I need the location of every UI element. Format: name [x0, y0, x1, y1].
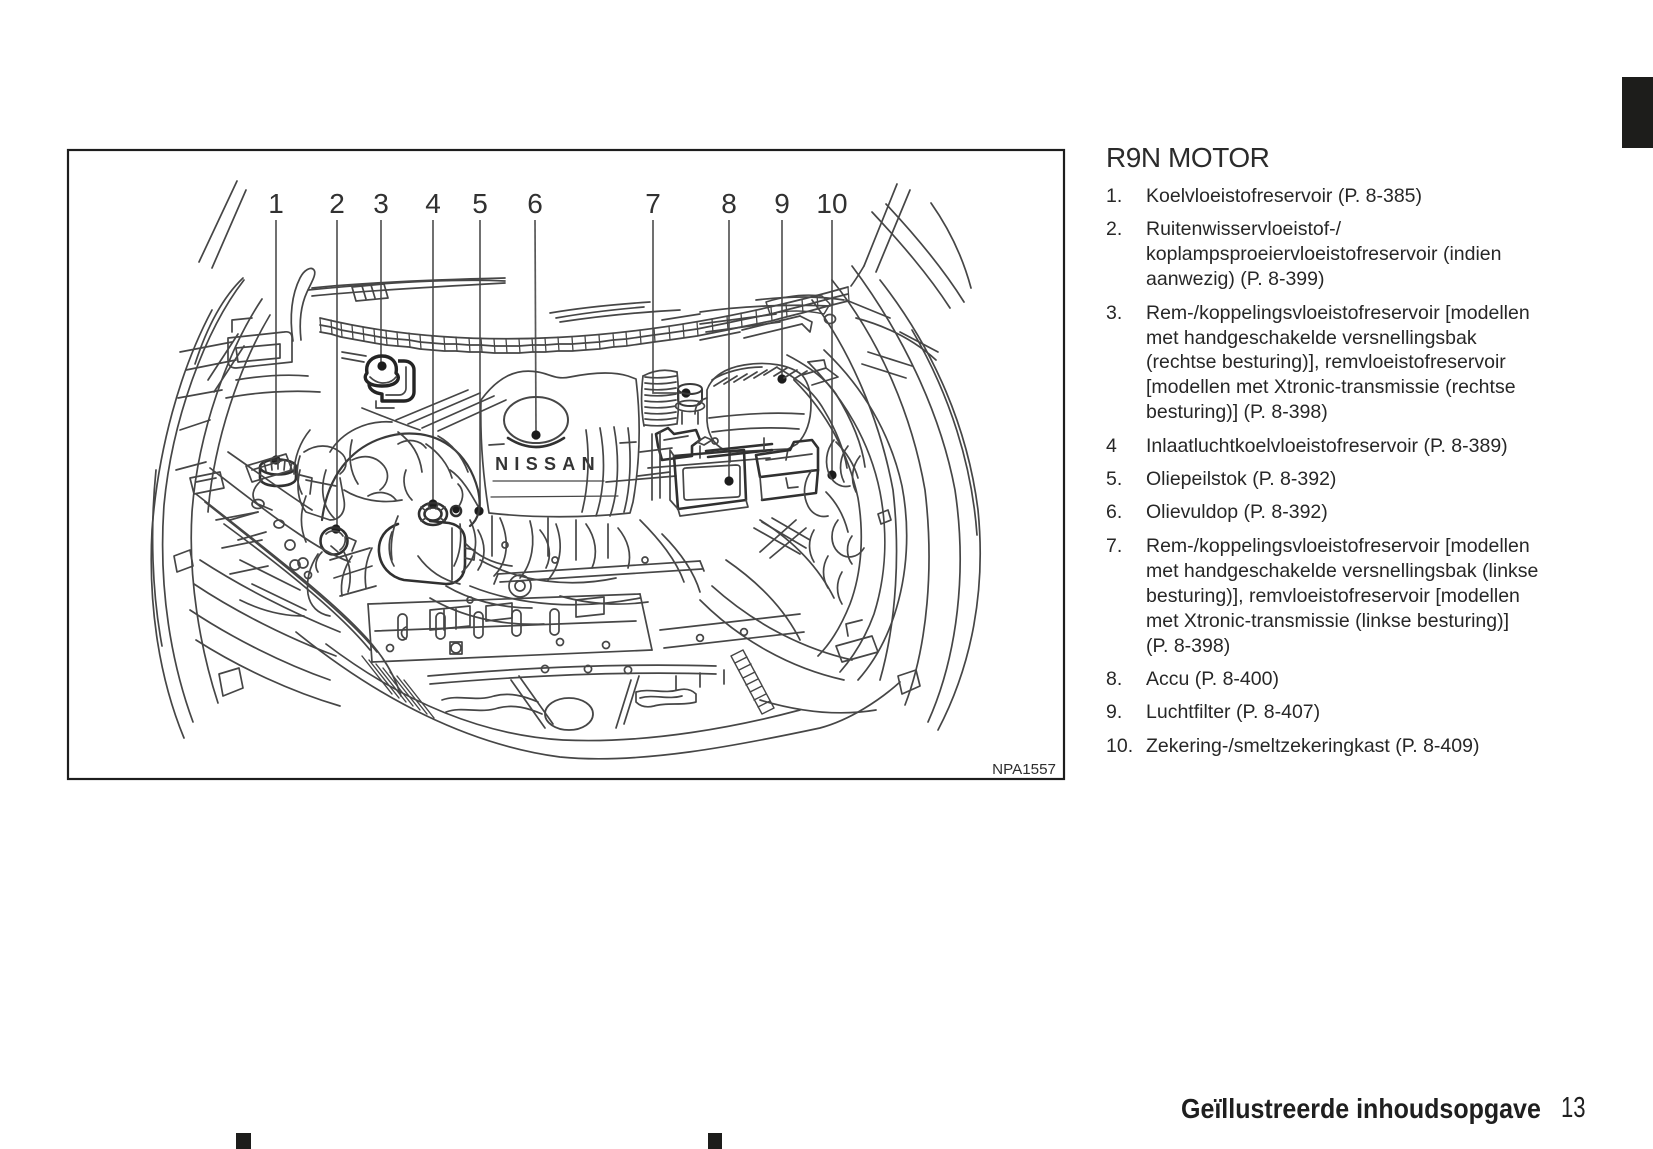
svg-text:2: 2: [329, 188, 345, 219]
svg-text:NISSAN: NISSAN: [495, 454, 601, 474]
svg-text:7: 7: [645, 188, 661, 219]
svg-text:4: 4: [425, 188, 441, 219]
svg-text:1: 1: [268, 188, 284, 219]
svg-text:10: 10: [816, 188, 847, 219]
svg-text:6: 6: [527, 188, 543, 219]
svg-text:8: 8: [721, 188, 737, 219]
svg-text:9: 9: [774, 188, 790, 219]
svg-text:5: 5: [472, 188, 488, 219]
svg-text:3: 3: [373, 188, 389, 219]
svg-text:NPA1557: NPA1557: [992, 761, 1056, 778]
